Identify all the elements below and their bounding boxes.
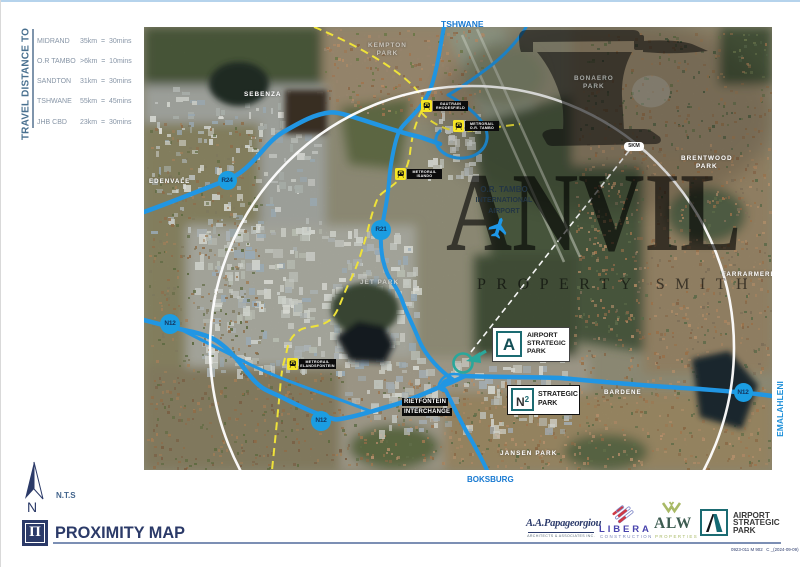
- svg-text:N: N: [27, 499, 37, 514]
- svg-text:PROPERTY SMITH: PROPERTY SMITH: [477, 276, 758, 293]
